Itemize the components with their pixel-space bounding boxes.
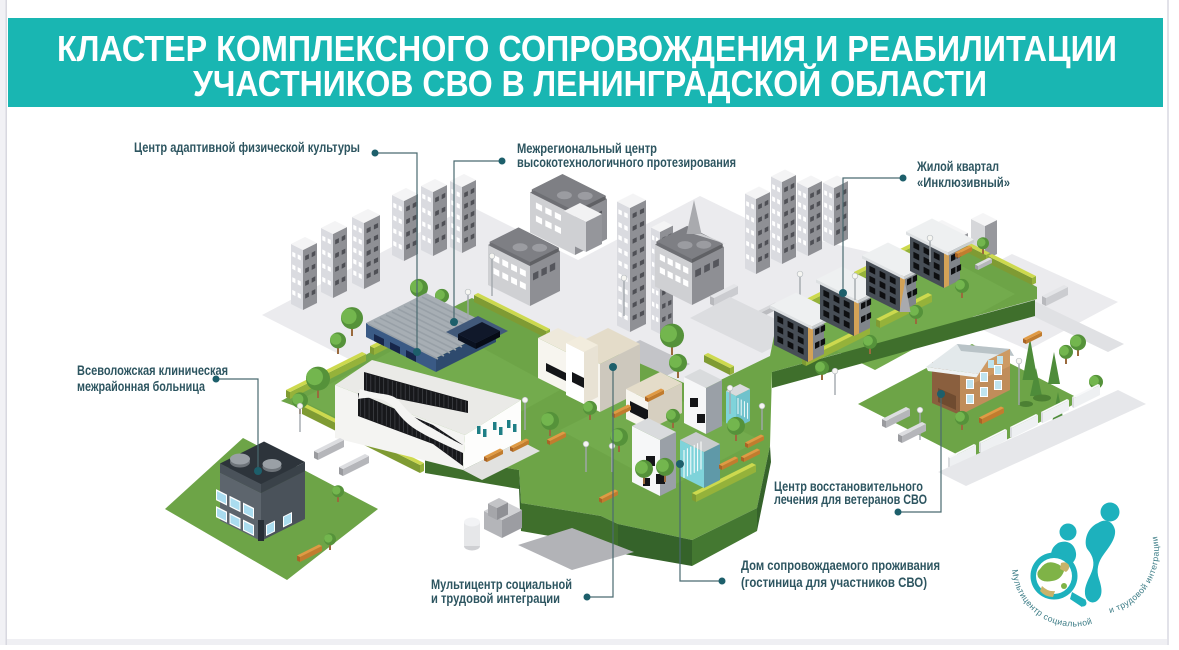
svg-text:УЧАСТНИКОВ СВО В ЛЕНИНГРАДСКОЙ: УЧАСТНИКОВ СВО В ЛЕНИНГРАДСКОЙ ОБЛАСТИ — [193, 62, 987, 104]
svg-text:высокотехнологичного протезиро: высокотехнологичного протезирования — [517, 155, 736, 170]
svg-text:Межрегиональный центр: Межрегиональный центр — [517, 141, 657, 156]
svg-text:и трудовой интеграции: и трудовой интеграции — [431, 591, 560, 606]
svg-text:лечения для ветеранов СВО: лечения для ветеранов СВО — [774, 492, 927, 507]
svg-text:Центр адаптивной физической ку: Центр адаптивной физической культуры — [134, 140, 360, 155]
svg-text:Дом сопровождаемого проживания: Дом сопровождаемого проживания — [741, 558, 940, 573]
svg-text:«Инклюзивный»: «Инклюзивный» — [917, 175, 1010, 190]
svg-text:межрайонная больница: межрайонная больница — [77, 379, 205, 394]
svg-text:Всеволожская клиническая: Всеволожская клиническая — [77, 363, 228, 378]
svg-text:Мультицентр социальной: Мультицентр социальной — [431, 577, 572, 592]
svg-text:Жилой квартал: Жилой квартал — [916, 159, 999, 174]
svg-text:(гостиница для участников СВО): (гостиница для участников СВО) — [741, 575, 927, 590]
